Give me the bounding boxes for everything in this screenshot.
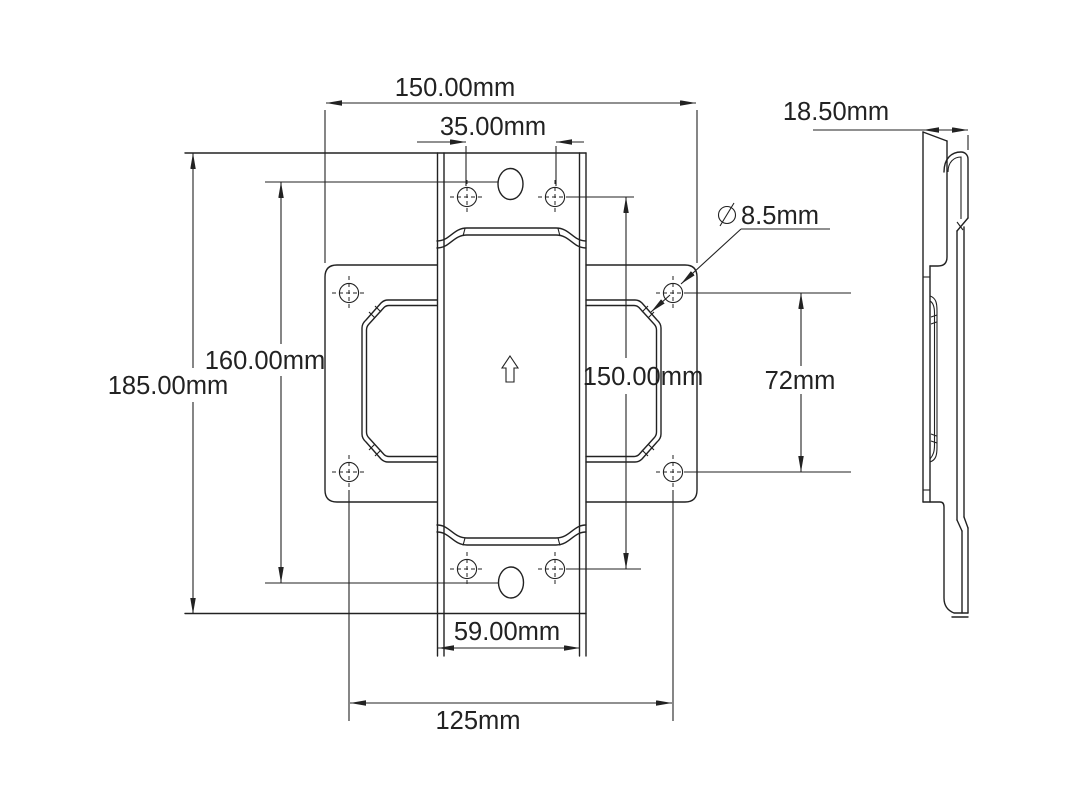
drawing-canvas: 150.00mm 35.00mm 18.50mm 8.5mm (0, 0, 1079, 810)
dim-total-height: 185.00mm (108, 153, 228, 614)
top-slot (498, 169, 523, 200)
bottom-tab-fold-line (437, 525, 586, 546)
front-view (185, 153, 697, 656)
dim-tab-width: 59.00mm (438, 618, 580, 648)
dim-plate-hole-column-spacing: 125mm (349, 490, 673, 735)
left-handle (362, 300, 437, 462)
dim-label-top-hole-spacing: 35.00mm (440, 113, 546, 141)
tab-hole-top-left (450, 180, 484, 214)
dim-plate-hole-row-spacing: 72mm (684, 293, 851, 472)
dim-label-tab-width: 59.00mm (454, 618, 560, 646)
dim-slot-spacing: 160.00mm (205, 182, 499, 583)
dim-label-total-height: 185.00mm (108, 372, 228, 400)
top-tab-fold-line (437, 228, 586, 248)
bottom-slot (499, 567, 524, 598)
bottom-tab-holes (450, 552, 572, 598)
up-arrow-icon (502, 356, 518, 382)
dim-label-plate-hole-column-spacing: 125mm (435, 707, 520, 735)
tab-hole-bottom-left (450, 552, 484, 586)
dim-label-hole-diameter: 8.5mm (741, 202, 819, 230)
diameter-symbol-icon (719, 203, 736, 226)
dim-hole-diameter: 8.5mm (651, 202, 830, 312)
dimensions: 150.00mm 35.00mm 18.50mm 8.5mm (108, 74, 968, 735)
mounting-hole-bottom-left (332, 455, 366, 489)
side-hub-detail (930, 296, 937, 462)
dim-label-slot-spacing: 160.00mm (205, 347, 325, 375)
dim-label-plate-hole-row-spacing: 72mm (765, 367, 836, 395)
side-view (923, 132, 968, 617)
top-tab-holes (450, 169, 572, 215)
dim-label-side-thickness: 18.50mm (783, 98, 889, 126)
dim-label-tab-hole-span: 150.00mm (583, 363, 703, 391)
bracket-dimension-drawing: 150.00mm 35.00mm 18.50mm 8.5mm (0, 0, 1079, 810)
mounting-hole-top-left (332, 276, 366, 310)
dim-side-thickness: 18.50mm (783, 98, 968, 130)
dim-label-overall-width: 150.00mm (395, 74, 515, 102)
